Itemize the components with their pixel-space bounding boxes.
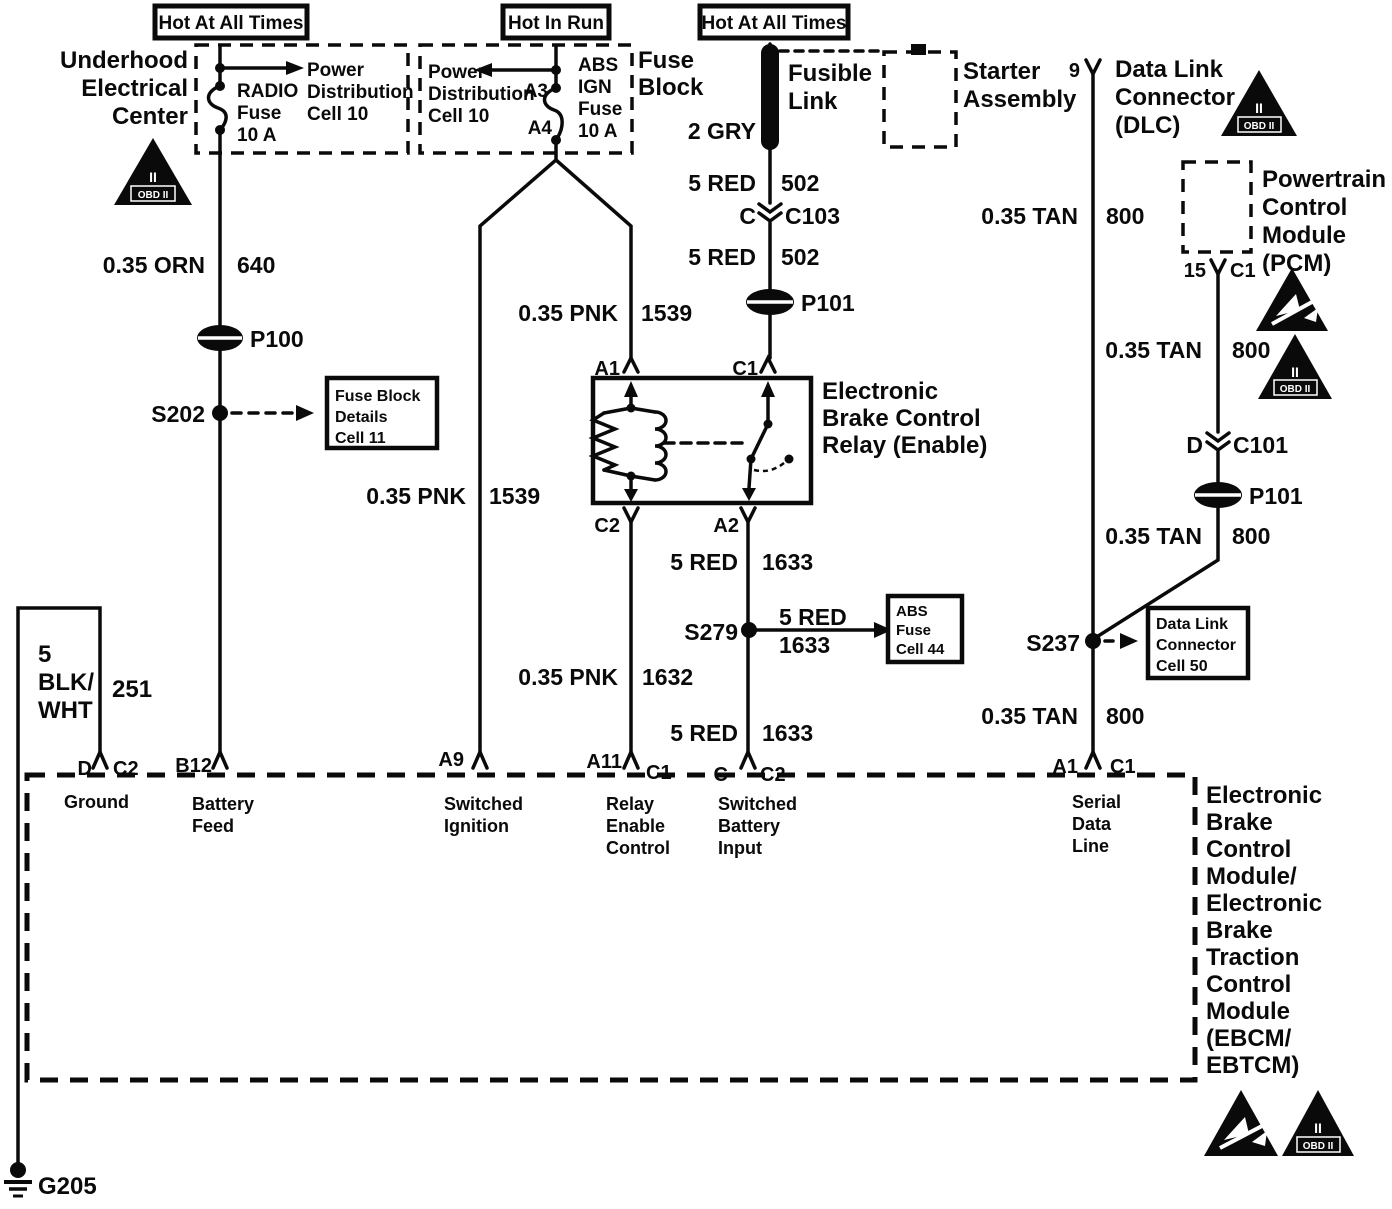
wire-number: 640 [237, 252, 275, 278]
pin-function: Control [606, 838, 670, 858]
wire-gauge: 0.35 TAN [1105, 337, 1202, 363]
refbox-line: Details [335, 409, 388, 426]
pin-label: C2 [113, 758, 139, 780]
pin-label: C2 [760, 764, 786, 786]
obd2-box-label: OBD II [138, 190, 169, 201]
pin-label-9: 9 [1069, 60, 1080, 82]
pin-label: D [78, 758, 92, 780]
radio-fuse-line: Fuse [237, 103, 281, 124]
ebcm-name-line: Control [1206, 836, 1291, 863]
wire-gauge: 0.35 ORN [103, 252, 205, 278]
pin-label: C1 [646, 762, 672, 784]
pin-label-15: 15 [1184, 260, 1206, 282]
pcm-label-line: Module [1262, 222, 1346, 249]
connector-pin: C [739, 203, 756, 229]
pin-function: Battery [192, 794, 254, 814]
wiring-diagram-page: Hot At All Times Hot In Run Hot At All T… [0, 0, 1392, 1204]
electronic-brake-control-relay: A1 C1 C2 A2 Electronic Brake Contro [593, 358, 987, 537]
refbox-line: Fuse [896, 622, 931, 639]
refbox-line: ABS [896, 603, 928, 620]
ebcm-name-line: EBTCM) [1206, 1052, 1299, 1079]
starter-label-line: Assembly [963, 86, 1077, 113]
pin-function: Feed [192, 816, 234, 836]
fusible-link-label-line: Link [788, 88, 838, 115]
fuse-block-label-line: Fuse [638, 47, 694, 74]
wire-number: 502 [781, 170, 819, 196]
obd2-warning-icon: II OBD II [114, 138, 192, 205]
p100-grommet: P100 [197, 325, 304, 352]
radio-fuse-line: 10 A [237, 125, 277, 146]
pin-label-c1: C1 [1230, 260, 1256, 282]
pin-fork [741, 752, 755, 768]
pin-label: C [714, 764, 728, 786]
refbox-line: Fuse Block [335, 388, 420, 405]
wire-gauge: 5 RED [688, 244, 756, 270]
connector-chevrons [1207, 433, 1229, 450]
fuse-block: Power Distribution Cell 10 A3 A4 ABS IGN… [420, 45, 704, 153]
wire-number: 800 [1232, 523, 1270, 549]
pin-label: C1 [1110, 756, 1136, 778]
underhood-electrical-center: Underhood Electrical Center RADIO Fuse 1… [60, 45, 414, 153]
obd2-numeral: II [149, 169, 157, 185]
pin-label: A11 [586, 751, 622, 773]
c101-connector: D C101 [1186, 432, 1288, 458]
underhood-title-line: Electrical [81, 75, 188, 102]
power-dist-line: Distribution [428, 84, 535, 105]
refbox-line: Cell 50 [1156, 658, 1208, 675]
pin-function: Enable [606, 816, 665, 836]
refbox-line: Cell 44 [896, 641, 945, 658]
p101-grommet-right: P101 [1194, 482, 1303, 509]
ebcm-module: D C2 B12 A9 A11 C1 C C2 A1 C1 Ground Bat… [27, 749, 1322, 1080]
obd2-box-label: OBD II [1244, 121, 1275, 132]
obd2-box-label: OBD II [1280, 384, 1311, 395]
dlc-cell-refbox: Data Link Connector Cell 50 [1148, 608, 1248, 678]
wire-gauge: 5 RED [670, 549, 738, 575]
power-dist-line: Cell 10 [307, 104, 368, 125]
pin-fork [624, 358, 638, 372]
banner-hot-at-all-times-2: Hot At All Times [700, 6, 848, 38]
wire-gauge: 0.35 TAN [981, 203, 1078, 229]
pin-function: Switched [718, 794, 797, 814]
obd2-numeral: II [1314, 1120, 1322, 1136]
wire-number: 1633 [779, 632, 830, 658]
power-dist-line: Distribution [307, 82, 414, 103]
splice-label: S202 [151, 401, 205, 427]
starter-assembly: Starter Assembly [884, 44, 1077, 147]
wire-label-2gry: 2 GRY [688, 118, 756, 144]
wire-number: 800 [1232, 337, 1270, 363]
pin-fork [1086, 60, 1100, 74]
wire-gauge: 0.35 TAN [981, 703, 1078, 729]
radio-fuse-line: RADIO [237, 81, 298, 102]
arrow-to-power-dist-right [286, 61, 304, 75]
pin-fork [473, 752, 487, 768]
fusible-link-bar [761, 44, 779, 150]
pin-function: Relay [606, 794, 654, 814]
power-dist-line: Cell 10 [428, 106, 489, 127]
pin-fork [1211, 260, 1225, 274]
pin-label-a2: A2 [713, 515, 739, 537]
fusible-link: Fusible Link 2 GRY [688, 44, 872, 150]
fusible-link-label-line: Fusible [788, 60, 872, 87]
banner-hot-at-all-times-1: Hot At All Times [155, 6, 307, 38]
pin-function: Data [1072, 814, 1112, 834]
pin-fork [93, 752, 107, 768]
obd2-numeral: II [1255, 100, 1263, 116]
relay-name-line: Brake Control [822, 405, 981, 432]
radio-fuse-element [209, 86, 227, 130]
refbox-line: Cell 11 [335, 430, 386, 447]
power-dist-line: Power [307, 60, 365, 81]
abs-ign-fuse-line: IGN [578, 77, 612, 98]
connector-pin: D [1186, 432, 1203, 458]
underhood-title-line: Center [112, 103, 188, 130]
pin-function: Ground [64, 792, 129, 812]
banner-label: Hot At All Times [702, 13, 847, 34]
pin-function: Switched [444, 794, 523, 814]
wire-gauge: 5 RED [779, 604, 847, 630]
wire-gauge: 0.35 PNK [518, 664, 618, 690]
pin-label: A9 [438, 749, 464, 771]
dlc-label-line: (DLC) [1115, 112, 1180, 139]
pin-fork [624, 752, 638, 768]
ebcm-name-line: Module [1206, 998, 1290, 1025]
ebcm-name-line: Electronic [1206, 890, 1322, 917]
dlc-label-line: Data Link [1115, 56, 1224, 83]
powertrain-control-module: Powertrain Control Module (PCM) 15 C1 [1183, 162, 1386, 282]
banner-hot-in-run: Hot In Run [503, 6, 609, 38]
p101-grommet-mid: P101 [746, 289, 855, 316]
pin-fork [213, 752, 227, 768]
pcm-label-line: Powertrain [1262, 166, 1386, 193]
wire-gauge-line: WHT [38, 697, 93, 724]
grommet-label: P100 [250, 326, 304, 352]
pcm-label-line: Control [1262, 194, 1347, 221]
abs-ign-fuse-line: Fuse [578, 99, 622, 120]
splice-label: S279 [684, 619, 738, 645]
wire-number: 251 [112, 676, 152, 703]
pin-label-a4: A4 [528, 118, 553, 139]
connector-chevrons [759, 204, 781, 221]
wire-gauge-line: BLK/ [38, 669, 94, 696]
relay-name-line: Electronic [822, 378, 938, 405]
ground-label: G205 [38, 1173, 97, 1200]
g205-ground: G205 [4, 1162, 97, 1200]
c103-connector: C C103 [739, 203, 840, 229]
wire-gauge: 5 RED [688, 170, 756, 196]
ebcm-name-line: Module/ [1206, 863, 1297, 890]
abs-fuse-refbox: ABS Fuse Cell 44 [888, 596, 962, 662]
ebcm-name-line: Electronic [1206, 782, 1322, 809]
esd-warning-icon [1256, 268, 1328, 331]
ebcm-power-ground-schematic: Hot At All Times Hot In Run Hot At All T… [0, 0, 1392, 1204]
wire-gauge: 0.35 TAN [1105, 523, 1202, 549]
pin-fork [741, 508, 755, 522]
wire-number: 502 [781, 244, 819, 270]
pin-function: Serial [1072, 792, 1121, 812]
ebcm-name-line: Brake [1206, 917, 1273, 944]
ebcm-name-line: Traction [1206, 944, 1299, 971]
fuse-block-details-refbox: Fuse Block Details Cell 11 [327, 378, 437, 448]
power-dist-line: Power [428, 62, 486, 83]
connector-label: C103 [785, 203, 840, 229]
banner-label: Hot At All Times [159, 13, 304, 34]
ebcm-name-line: Control [1206, 971, 1291, 998]
s237-splice: S237 [1026, 630, 1101, 656]
pin-function: Input [718, 838, 762, 858]
wire-number: 1633 [762, 720, 813, 746]
pin-fork [761, 358, 775, 372]
abs-ign-fuse-line: ABS [578, 55, 618, 76]
relay-name-line: Relay (Enable) [822, 432, 987, 459]
wire-number: 1539 [489, 483, 540, 509]
grommet-label: P101 [1249, 483, 1303, 509]
abs-ign-fuse-line: 10 A [578, 121, 618, 142]
s279-splice: S279 [684, 619, 757, 645]
wire-number: 1633 [762, 549, 813, 575]
fuse-block-label-line: Block [638, 74, 704, 101]
esd-warning-icon [1204, 1090, 1278, 1156]
obd2-box-label: OBD II [1303, 1141, 1334, 1152]
pin-label: B12 [175, 755, 212, 777]
connector-label: C101 [1233, 432, 1288, 458]
pin-label-c2: C2 [594, 515, 620, 537]
ebcm-name-line: Brake [1206, 809, 1273, 836]
wire-gauge-line: 5 [38, 641, 51, 668]
wire-number: 800 [1106, 203, 1144, 229]
pin-function: Line [1072, 836, 1109, 856]
starter-label-line: Starter [963, 58, 1040, 85]
banner-label: Hot In Run [508, 13, 604, 34]
wire-gauge: 0.35 PNK [518, 300, 618, 326]
s202-splice: S202 [151, 401, 228, 427]
wire-gauge: 0.35 PNK [366, 483, 466, 509]
pin-label-a1: A1 [594, 358, 620, 380]
splice-label: S237 [1026, 630, 1080, 656]
obd2-warning-icon: II OBD II [1282, 1090, 1354, 1156]
arrow-to-fuse-details [296, 405, 314, 421]
pin-function: Ignition [444, 816, 509, 836]
pcm-label-line: (PCM) [1262, 250, 1331, 277]
grommet-label: P101 [801, 290, 855, 316]
underhood-title-line: Underhood [60, 47, 188, 74]
wire-gauge: 5 RED [670, 720, 738, 746]
starter-terminal [911, 44, 926, 55]
pin-fork [624, 508, 638, 522]
wire-number: 1539 [641, 300, 692, 326]
refbox-line: Connector [1156, 637, 1236, 654]
pin-label: A1 [1052, 756, 1078, 778]
pin-label-c1: C1 [732, 358, 758, 380]
refbox-line: Data Link [1156, 616, 1228, 633]
obd2-numeral: II [1291, 364, 1299, 380]
pin-label-a3: A3 [524, 81, 548, 102]
wire-number: 1632 [642, 664, 693, 690]
pin-fork [1086, 752, 1100, 768]
arrow-to-dlc-cell [1120, 633, 1138, 649]
ebcm-name-line: (EBCM/ [1206, 1025, 1292, 1052]
dlc-label-line: Connector [1115, 84, 1235, 111]
pin-function: Battery [718, 816, 780, 836]
wire-number: 800 [1106, 703, 1144, 729]
